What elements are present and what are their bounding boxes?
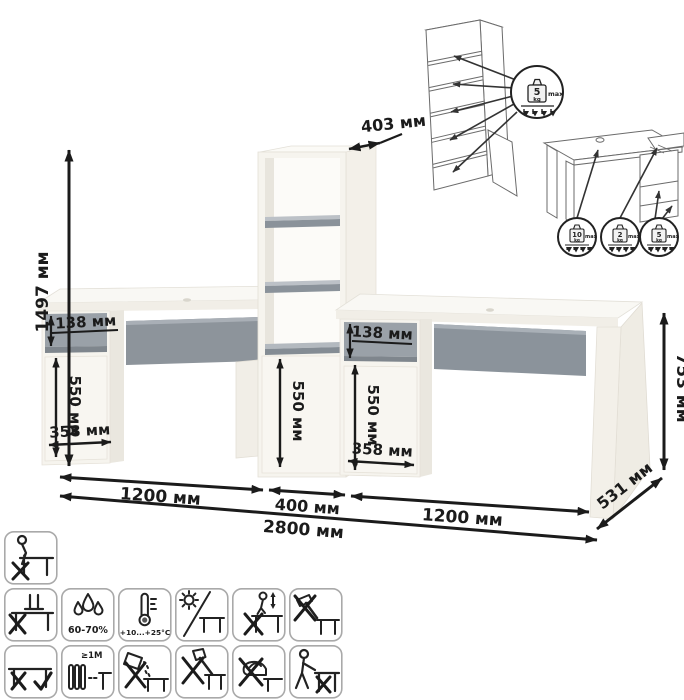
dim-left-drawer-height: 138 мм [55, 311, 117, 332]
open-door [488, 130, 517, 196]
dim-desk-height: 753 мм [672, 353, 684, 422]
load-badge-pedestal-shelf: 5 kg max [640, 218, 680, 256]
desktop-load-max: max [585, 234, 598, 240]
do-not-drag-alone-icon [290, 646, 342, 698]
dim-left-door-width: 358 мм [49, 420, 111, 441]
pedestal-shelf-load-max: max [667, 234, 680, 240]
furniture-dimension-diagram: 1497 мм 403 мм 138 мм 550 мм 358 мм 550 … [0, 0, 684, 700]
diagram-canvas: 1497 мм 403 мм 138 мм 550 мм 358 мм 550 … [0, 0, 684, 700]
cable-hole [486, 308, 494, 311]
keep-1m-from-heaters-icon: ≥1M [62, 646, 114, 698]
no-sharp-tools-icon [176, 646, 228, 698]
shelf-load-max: max [548, 90, 564, 98]
shelf-load-unit: kg [533, 97, 541, 103]
humidity-60-70-icon: 60-70% [62, 589, 114, 641]
do-not-spill-liquids-icon [119, 646, 171, 698]
do-not-stand-on-surface-icon [5, 589, 57, 641]
dim-right-door-width: 358 мм [351, 439, 413, 460]
dim-bookcase-door-height: 550 мм [289, 380, 307, 441]
cable-hole [183, 298, 191, 301]
drawer-load-max: max [628, 234, 641, 240]
desktop-load-unit: kg [574, 238, 580, 243]
desk-load-inset: 10 kg max 2 kg max 5 kg [544, 130, 684, 256]
dim-overall-width: 2800 мм [262, 517, 344, 543]
pedestal-shelf-load-unit: kg [656, 238, 662, 243]
no-hot-objects-icon [233, 646, 285, 698]
dim-left-desk-width: 1200 мм [119, 484, 201, 510]
humidity-label: 60-70% [68, 625, 108, 636]
dim-overall-height: 1497 мм [33, 251, 53, 332]
dim-right-door-height: 550 мм [364, 384, 382, 445]
no-hammer-impacts-icon [290, 589, 342, 641]
do-not-jump-on-surface-icon [233, 589, 285, 641]
temperature-label: +10...+25°C [120, 628, 171, 637]
dim-bookcase-depth: 403 мм [360, 111, 427, 137]
do-not-sit-on-surface-icon [5, 532, 57, 584]
load-badge-drawer: 2 kg max [601, 218, 641, 256]
dim-right-drawer-height: 138 мм [351, 322, 413, 343]
lift-do-not-drag-icon [5, 646, 57, 698]
load-badge-desktop: 10 kg max [558, 218, 598, 256]
bookcase-load-inset: 5 kg max [426, 20, 564, 196]
temperature-range-icon: +10...+25°C [119, 589, 171, 641]
care-icons: 60-70% +10...+25°C [5, 532, 342, 698]
heater-distance-label: ≥1M [81, 651, 103, 661]
avoid-direct-sunlight-icon [176, 589, 228, 641]
drawer-load-unit: kg [617, 238, 623, 243]
